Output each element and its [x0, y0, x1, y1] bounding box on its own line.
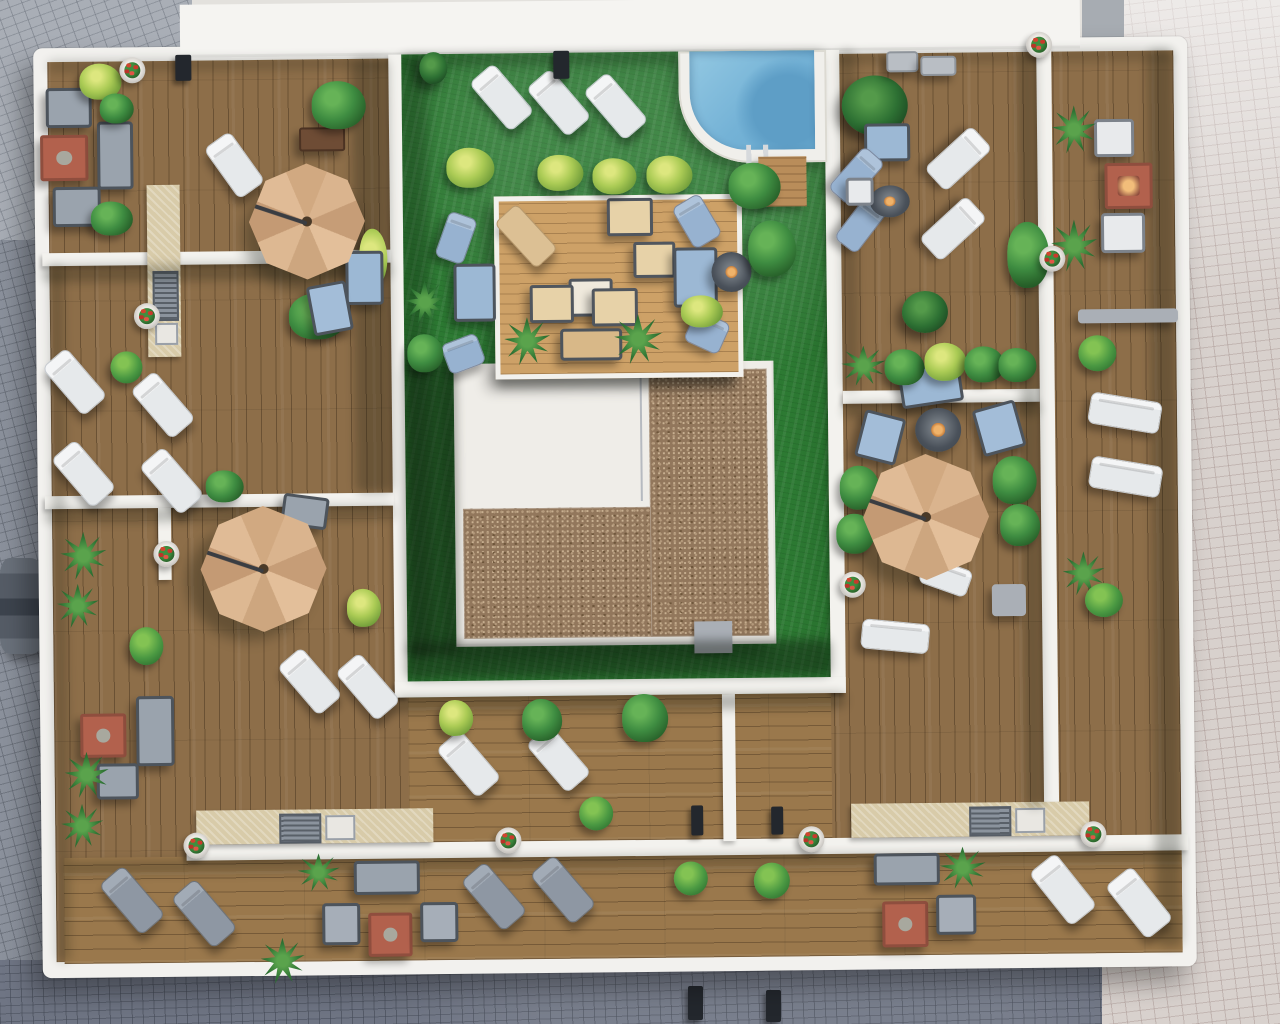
sink	[155, 323, 178, 345]
sink	[325, 815, 355, 840]
grill	[279, 813, 321, 843]
shrub	[419, 52, 447, 84]
plant	[592, 158, 636, 194]
shrub	[129, 627, 163, 665]
armchair	[322, 903, 360, 945]
seat	[530, 285, 574, 323]
flower-pot	[495, 827, 521, 853]
chair	[1101, 213, 1145, 253]
plant	[522, 699, 562, 741]
plant	[347, 589, 381, 627]
plant	[446, 148, 494, 189]
sofa	[136, 696, 175, 766]
sofa	[345, 251, 384, 305]
light-post	[553, 51, 569, 79]
chair	[1094, 119, 1134, 157]
flower-pot	[1080, 821, 1106, 847]
fire-table	[1104, 163, 1152, 210]
bench	[299, 127, 345, 151]
light-post	[771, 807, 783, 835]
fire-table	[882, 901, 928, 947]
light-post	[175, 55, 191, 81]
deck-mat	[992, 584, 1026, 616]
flower-pot	[840, 572, 866, 598]
plant	[884, 349, 924, 385]
plant	[91, 201, 133, 235]
fire-table	[368, 912, 412, 956]
plant	[998, 348, 1036, 382]
shrub	[579, 796, 613, 830]
shadow	[403, 364, 458, 655]
plant	[748, 220, 797, 276]
sofa	[354, 860, 420, 895]
plant	[206, 470, 244, 502]
plant	[1000, 504, 1040, 546]
armchair	[420, 902, 458, 942]
plant	[100, 93, 134, 123]
gravel-roof	[463, 507, 652, 639]
plant	[622, 694, 669, 742]
plant	[407, 334, 443, 372]
tree	[902, 291, 948, 333]
shrub	[1085, 583, 1123, 617]
plant	[537, 155, 583, 191]
shadow	[406, 639, 830, 679]
plant	[681, 295, 723, 327]
flower-pot	[134, 303, 160, 329]
shrub	[1078, 335, 1116, 371]
roof-vent	[886, 51, 918, 72]
flower-pot	[153, 541, 179, 567]
sofa	[874, 853, 940, 886]
seat	[633, 242, 675, 278]
plant	[924, 343, 966, 381]
side-table	[40, 135, 88, 182]
roof-vent	[920, 56, 956, 76]
plant	[728, 163, 780, 210]
armchair	[936, 895, 976, 935]
seat	[592, 288, 638, 326]
bench	[560, 328, 622, 361]
sofa	[97, 121, 134, 189]
flower-pot	[183, 833, 209, 859]
shrub	[110, 351, 142, 383]
shrub	[674, 861, 708, 895]
plant	[646, 155, 692, 193]
flower-pot	[1039, 246, 1065, 272]
sofa	[97, 763, 139, 799]
seat	[607, 198, 653, 236]
building-top-band	[180, 0, 1081, 58]
plant	[992, 456, 1037, 504]
flower-pot	[1026, 32, 1052, 58]
sofa	[453, 264, 496, 322]
flower-pot	[119, 57, 145, 83]
shrub	[754, 862, 790, 898]
sink	[1015, 808, 1045, 833]
rooftop-floor-plan-render	[0, 0, 1280, 1024]
flower-pot	[798, 826, 824, 852]
fire-pit	[915, 408, 961, 452]
deck-step	[1078, 308, 1178, 323]
sun-lounger	[860, 618, 931, 654]
light-post	[691, 805, 703, 835]
side-table	[80, 713, 126, 757]
chair	[846, 178, 874, 206]
gravel-roof	[649, 369, 770, 637]
grill	[969, 806, 1011, 836]
wall	[722, 694, 737, 841]
plant	[311, 81, 365, 130]
rooftop-layer	[0, 0, 1280, 1024]
fire-table	[711, 252, 751, 292]
plant	[439, 700, 473, 736]
